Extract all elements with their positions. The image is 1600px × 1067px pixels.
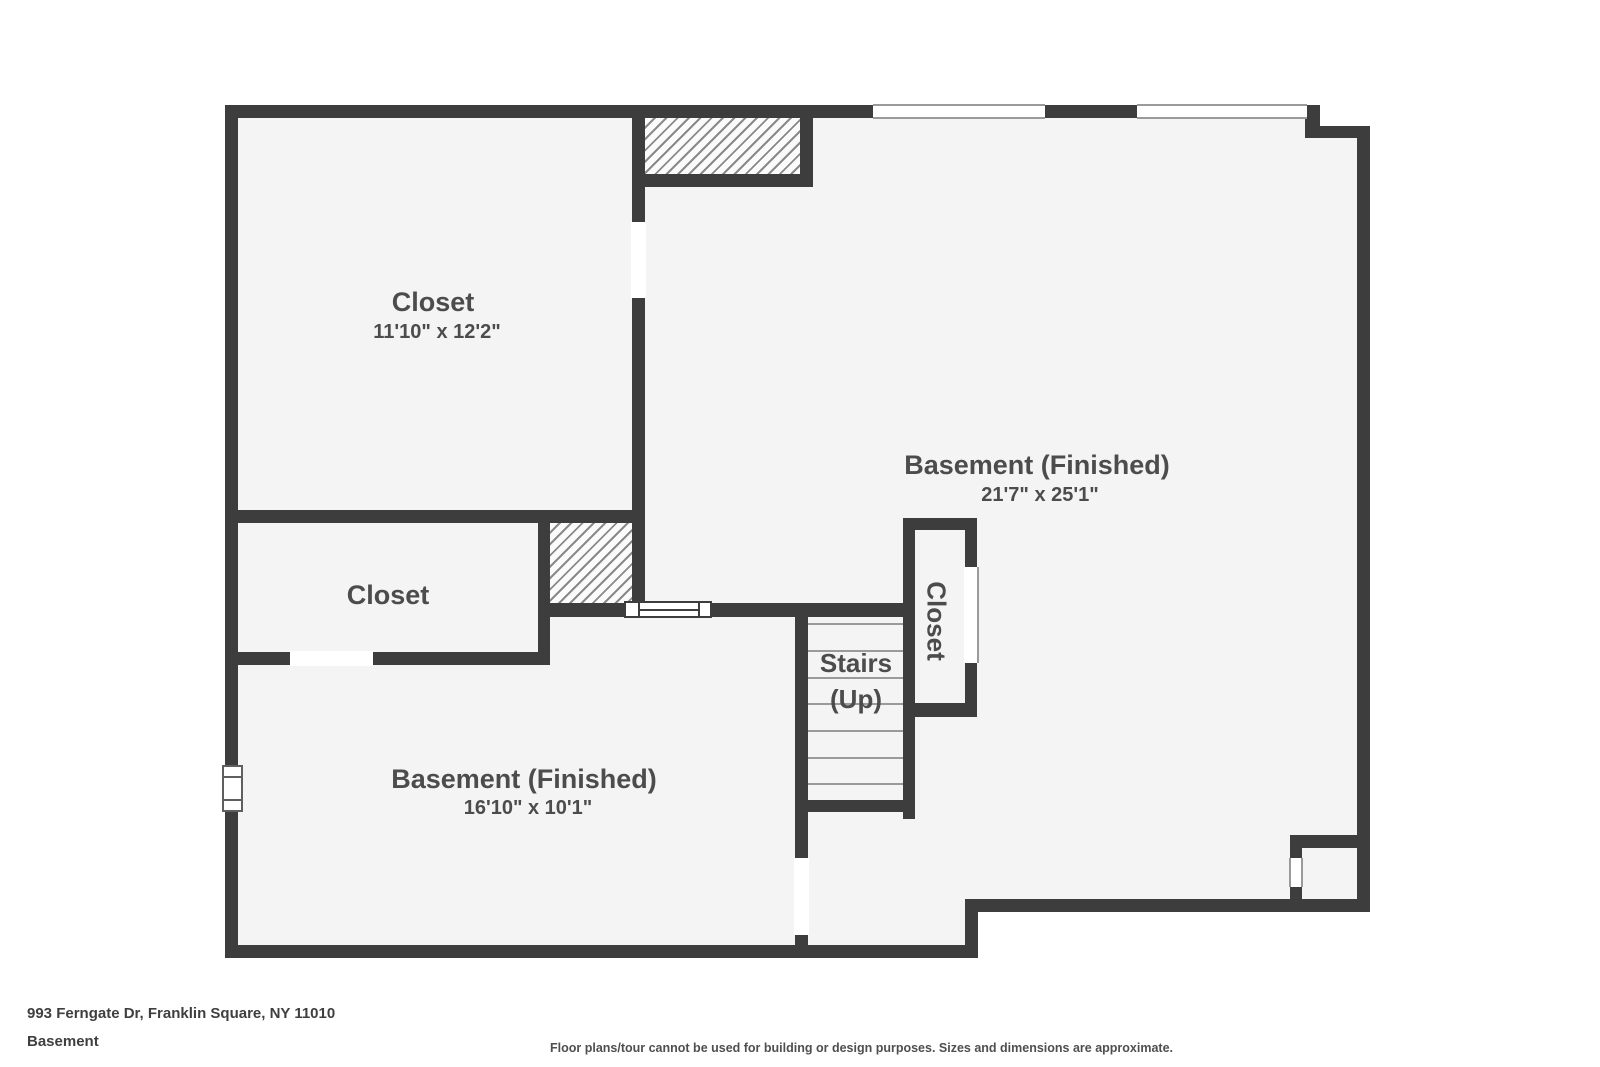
door-jamb-right bbox=[698, 603, 700, 616]
room-dims-basement-small: 16'10" x 10'1" bbox=[464, 797, 593, 819]
wall-closet3-bottom bbox=[903, 703, 977, 717]
floor-right-strip bbox=[1307, 132, 1364, 905]
room-label-closet-stairs: Closet bbox=[922, 581, 951, 660]
floor-plan-page: Closet 11'10" x 12'2" Basement (Finished… bbox=[0, 0, 1600, 1067]
door-opening-closet3 bbox=[964, 567, 979, 663]
wall-bottom-right bbox=[965, 899, 1370, 912]
room-label-stairs: Stairs (Up) bbox=[820, 645, 892, 717]
stair-tread bbox=[808, 623, 903, 625]
door-opening-basement-small bbox=[794, 858, 809, 935]
room-label-closet-top-left: Closet bbox=[392, 288, 475, 318]
stair-tread bbox=[808, 757, 903, 759]
window-bar-bottom bbox=[224, 799, 241, 801]
room-dims-closet-top-left: 11'10" x 12'2" bbox=[373, 321, 500, 343]
wall-right bbox=[1357, 126, 1370, 912]
wall-stairs-bottom bbox=[808, 800, 915, 812]
room-dims-basement-main: 21'7" x 25'1" bbox=[981, 484, 1098, 506]
stairs-label-line1: Stairs bbox=[820, 645, 892, 681]
window-symbol-top-1 bbox=[873, 104, 1045, 119]
door-opening-closet2 bbox=[290, 651, 373, 666]
window-bar-top bbox=[224, 776, 241, 778]
wall-top-right-block bbox=[1305, 105, 1320, 138]
window-opening-notch bbox=[1289, 858, 1303, 887]
stairs-label-line2: (Up) bbox=[820, 681, 892, 717]
wall-hatch1-bottom bbox=[632, 174, 813, 187]
room-label-basement-main: Basement (Finished) bbox=[904, 451, 1170, 481]
window-symbol-left bbox=[222, 765, 243, 812]
wall-notch-top bbox=[1290, 835, 1370, 848]
door-leaf-line bbox=[640, 609, 698, 611]
wall-closet1-bottom bbox=[225, 510, 645, 523]
footer-disclaimer: Floor plans/tour cannot be used for buil… bbox=[550, 1041, 1173, 1055]
hatched-area-mid bbox=[550, 523, 632, 603]
door-symbol-mid bbox=[624, 601, 712, 618]
wall-closet2-bottom bbox=[225, 652, 550, 665]
stair-tread bbox=[808, 730, 903, 732]
wall-mid-horizontal bbox=[538, 603, 915, 617]
wall-closet2-right bbox=[538, 523, 550, 665]
window-symbol-top-2 bbox=[1137, 104, 1307, 119]
stair-tread bbox=[808, 783, 903, 785]
footer-address: 993 Ferngate Dr, Franklin Square, NY 110… bbox=[27, 1005, 335, 1022]
wall-left bbox=[225, 105, 238, 958]
door-opening-closet1 bbox=[631, 222, 646, 298]
room-label-basement-small: Basement (Finished) bbox=[391, 765, 657, 795]
room-label-closet-mid-left: Closet bbox=[347, 581, 430, 611]
footer-level: Basement bbox=[27, 1033, 99, 1050]
wall-closet3-left bbox=[903, 518, 915, 819]
wall-bottom-left bbox=[225, 945, 978, 958]
hatched-area-top bbox=[645, 118, 800, 174]
